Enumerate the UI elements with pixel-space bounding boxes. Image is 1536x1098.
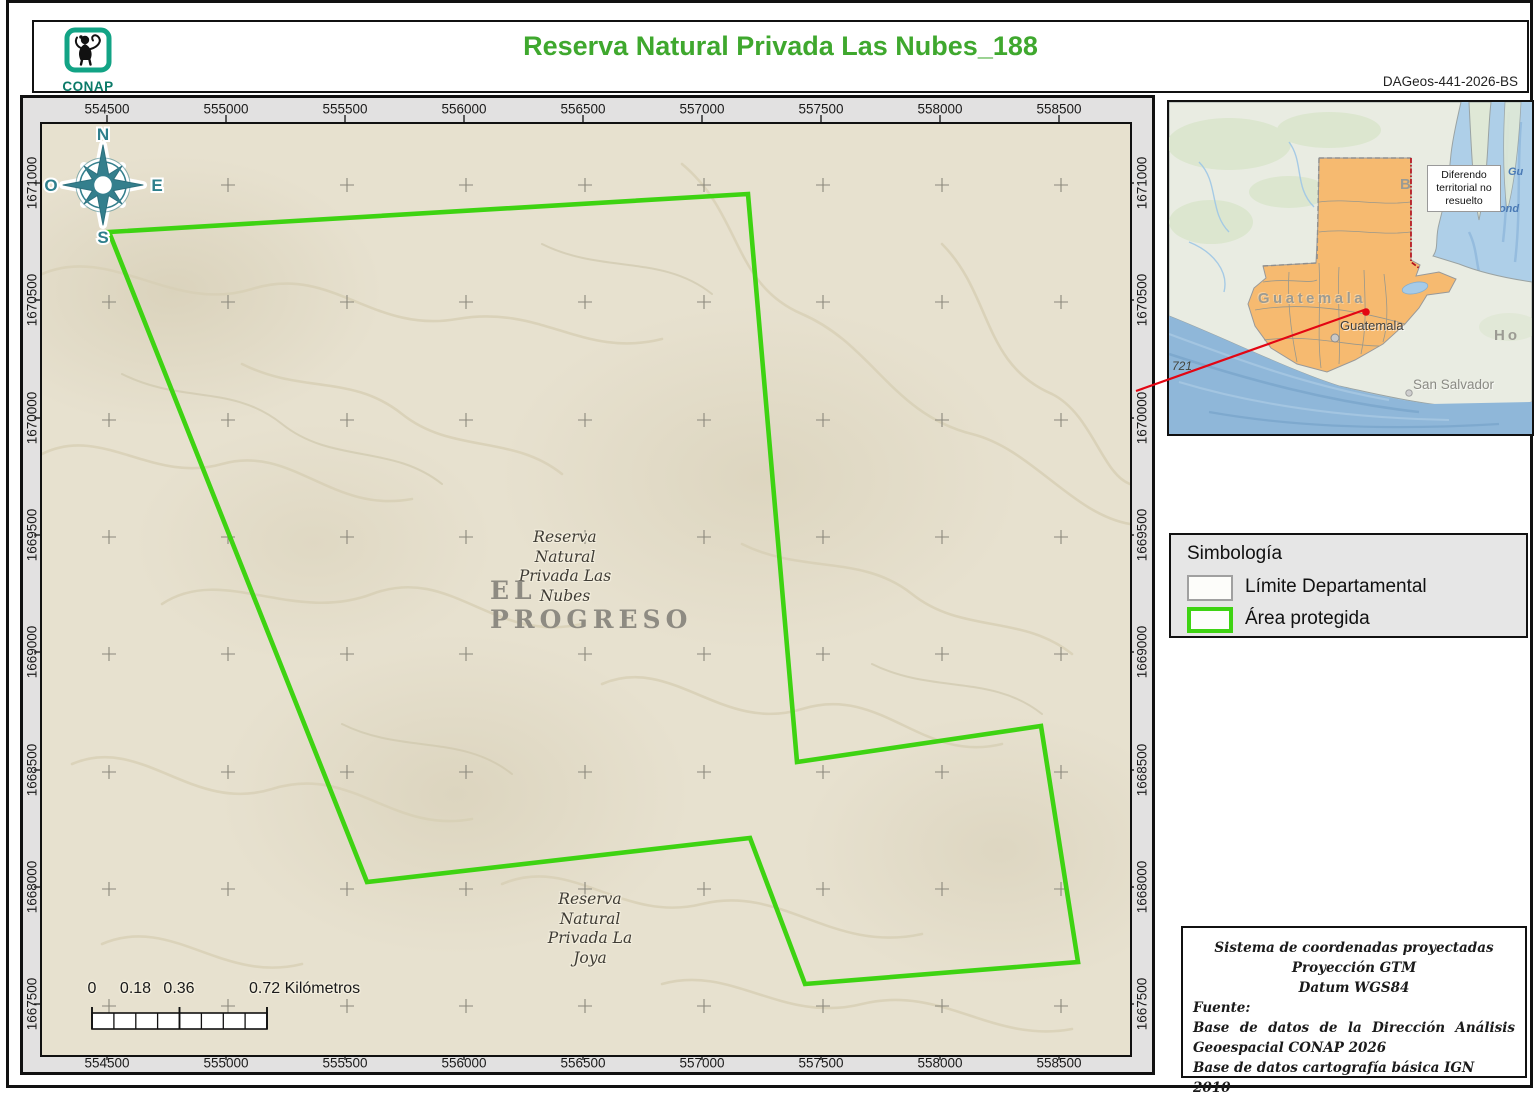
x-axis-label-bottom: 558500 bbox=[1036, 1056, 1081, 1071]
y-axis-label-right: 1668000 bbox=[1135, 861, 1150, 914]
conap-logo-text: CONAP bbox=[60, 79, 116, 94]
protected-area-swatch bbox=[1187, 607, 1233, 633]
y-axis-label-right: 1669000 bbox=[1135, 626, 1150, 679]
x-axis-label-top: 557500 bbox=[798, 102, 843, 117]
y-axis-label-left: 1669500 bbox=[25, 509, 40, 562]
projection-info: Sistema de coordenadas proyectadas Proye… bbox=[1191, 938, 1517, 998]
y-axis-label-left: 1668500 bbox=[25, 744, 40, 797]
map-sheet: { "header": { "logo_text": "CONAP", "tit… bbox=[0, 0, 1536, 1089]
x-axis-label-top: 554500 bbox=[84, 102, 129, 117]
scale-label-036: 0.36 bbox=[163, 980, 194, 998]
x-axis-label-top: 558500 bbox=[1036, 102, 1081, 117]
y-axis-label-left: 1669000 bbox=[25, 626, 40, 679]
info-line: Proyección GTM bbox=[1191, 958, 1517, 978]
x-axis-label-top: 558000 bbox=[917, 102, 962, 117]
differendo-note-box: Diferendo territorial no resuelto bbox=[1427, 165, 1501, 212]
legend-title: Simbología bbox=[1187, 543, 1282, 565]
header: CONAP Reserva Natural Privada Las Nubes_… bbox=[32, 20, 1529, 93]
scale-label-018: 0.18 bbox=[120, 980, 151, 998]
x-axis-label-bottom: 557500 bbox=[798, 1056, 843, 1071]
y-axis-label-left: 1671000 bbox=[25, 157, 40, 210]
x-axis-label-bottom: 555000 bbox=[203, 1056, 248, 1071]
source-line: Base de datos de la Dirección Análisis G… bbox=[1193, 1018, 1515, 1058]
map-frame: N E S O Reserva Natural Privada Las Nube… bbox=[20, 95, 1155, 1075]
y-axis-label-right: 1669500 bbox=[1135, 509, 1150, 562]
document-code: DAGeos-441-2026-BS bbox=[1383, 74, 1518, 89]
san-salvador-dot bbox=[1406, 390, 1412, 396]
compass-east-label: E bbox=[151, 176, 162, 195]
fuente-label: Fuente: bbox=[1193, 998, 1515, 1018]
guatemala-city-dot bbox=[1331, 334, 1339, 342]
y-axis-label-right: 1670500 bbox=[1135, 274, 1150, 327]
x-axis-label-top: 556000 bbox=[441, 102, 486, 117]
y-axis-label-left: 1670500 bbox=[25, 274, 40, 327]
legend-item-label: Límite Departamental bbox=[1245, 576, 1427, 598]
compass-rose: N E S O bbox=[42, 124, 174, 262]
x-axis-label-top: 556500 bbox=[560, 102, 605, 117]
x-axis-label-bottom: 554500 bbox=[84, 1056, 129, 1071]
compass-south-label: S bbox=[97, 228, 108, 247]
x-axis-label-bottom: 556500 bbox=[560, 1056, 605, 1071]
scale-label-072: 0.72 Kilómetros bbox=[249, 980, 360, 998]
y-axis-label-left: 1668000 bbox=[25, 861, 40, 914]
departmental-limit-swatch bbox=[1187, 575, 1233, 601]
legend: Simbología Límite Departamental Área pro… bbox=[1169, 533, 1528, 638]
legend-item-label: Área protegida bbox=[1245, 608, 1370, 630]
y-axis-label-right: 1670000 bbox=[1135, 392, 1150, 445]
locator-inset-map bbox=[1167, 100, 1534, 436]
reserve-location-dot bbox=[1362, 308, 1370, 316]
x-axis-label-bottom: 555500 bbox=[322, 1056, 367, 1071]
metadata-box: Sistema de coordenadas proyectadas Proye… bbox=[1181, 926, 1527, 1078]
y-axis-label-left: 1667500 bbox=[25, 978, 40, 1031]
x-axis-label-top: 555000 bbox=[203, 102, 248, 117]
x-axis-label-bottom: 557000 bbox=[679, 1056, 724, 1071]
page-title: Reserva Natural Privada Las Nubes_188 bbox=[34, 31, 1527, 62]
source-info: Fuente: Base de datos de la Dirección An… bbox=[1193, 998, 1515, 1098]
scale-bar-graphic bbox=[82, 1006, 412, 1038]
y-axis-label-left: 1670000 bbox=[25, 392, 40, 445]
scale-label-0: 0 bbox=[88, 980, 97, 998]
compass-west-label: O bbox=[44, 176, 57, 195]
info-line: Sistema de coordenadas proyectadas bbox=[1191, 938, 1517, 958]
source-line: Base de datos cartografía básica IGN 201… bbox=[1193, 1058, 1515, 1098]
reserve-label-la-joya: Reserva Natural Privada La Joya bbox=[530, 890, 650, 968]
department-label: EL PROGRESO bbox=[490, 576, 750, 634]
y-axis-label-right: 1671000 bbox=[1135, 157, 1150, 210]
x-axis-label-top: 557000 bbox=[679, 102, 724, 117]
info-line: Datum WGS84 bbox=[1191, 978, 1517, 998]
x-axis-label-bottom: 558000 bbox=[917, 1056, 962, 1071]
compass-north-label: N bbox=[97, 125, 109, 144]
x-axis-label-bottom: 556000 bbox=[441, 1056, 486, 1071]
topographic-map: N E S O Reserva Natural Privada Las Nube… bbox=[40, 122, 1132, 1057]
scale-bar: 0 0.18 0.36 0.72 Kilómetros bbox=[82, 980, 412, 1042]
x-axis-label-top: 555500 bbox=[322, 102, 367, 117]
inset-basemap bbox=[1169, 102, 1532, 434]
y-axis-label-right: 1668500 bbox=[1135, 744, 1150, 797]
y-axis-label-right: 1667500 bbox=[1135, 978, 1150, 1031]
